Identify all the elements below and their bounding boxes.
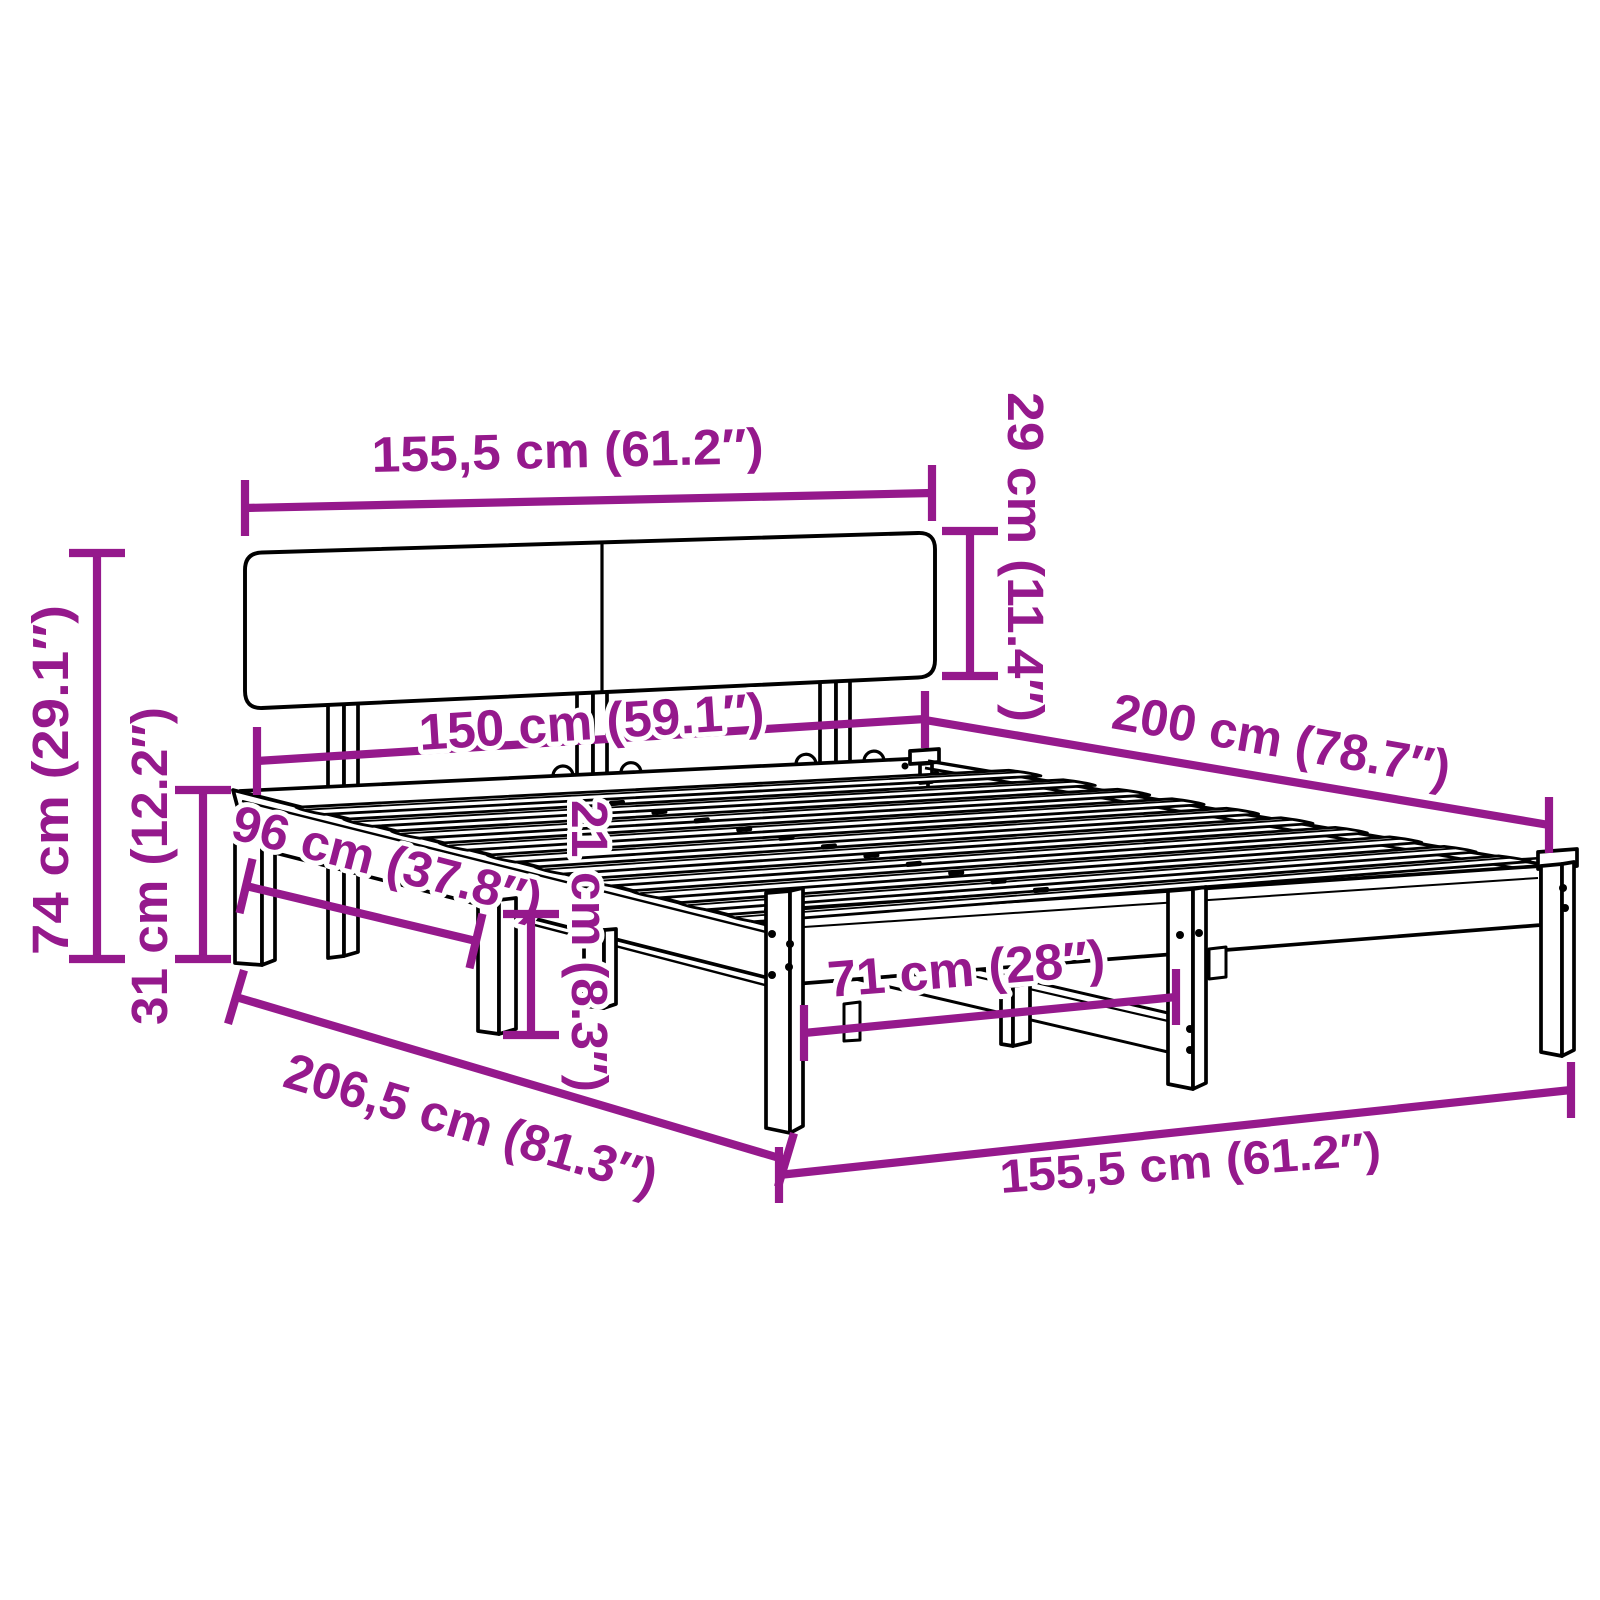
svg-text:74 cm (29.1″): 74 cm (29.1″): [22, 605, 79, 955]
svg-text:29 cm (11.4″): 29 cm (11.4″): [997, 392, 1054, 722]
svg-text:21 cm (8.3″): 21 cm (8.3″): [561, 800, 618, 1092]
svg-text:155,5 cm (61.2″): 155,5 cm (61.2″): [371, 418, 764, 483]
svg-text:31 cm (12.2″): 31 cm (12.2″): [121, 707, 178, 1025]
